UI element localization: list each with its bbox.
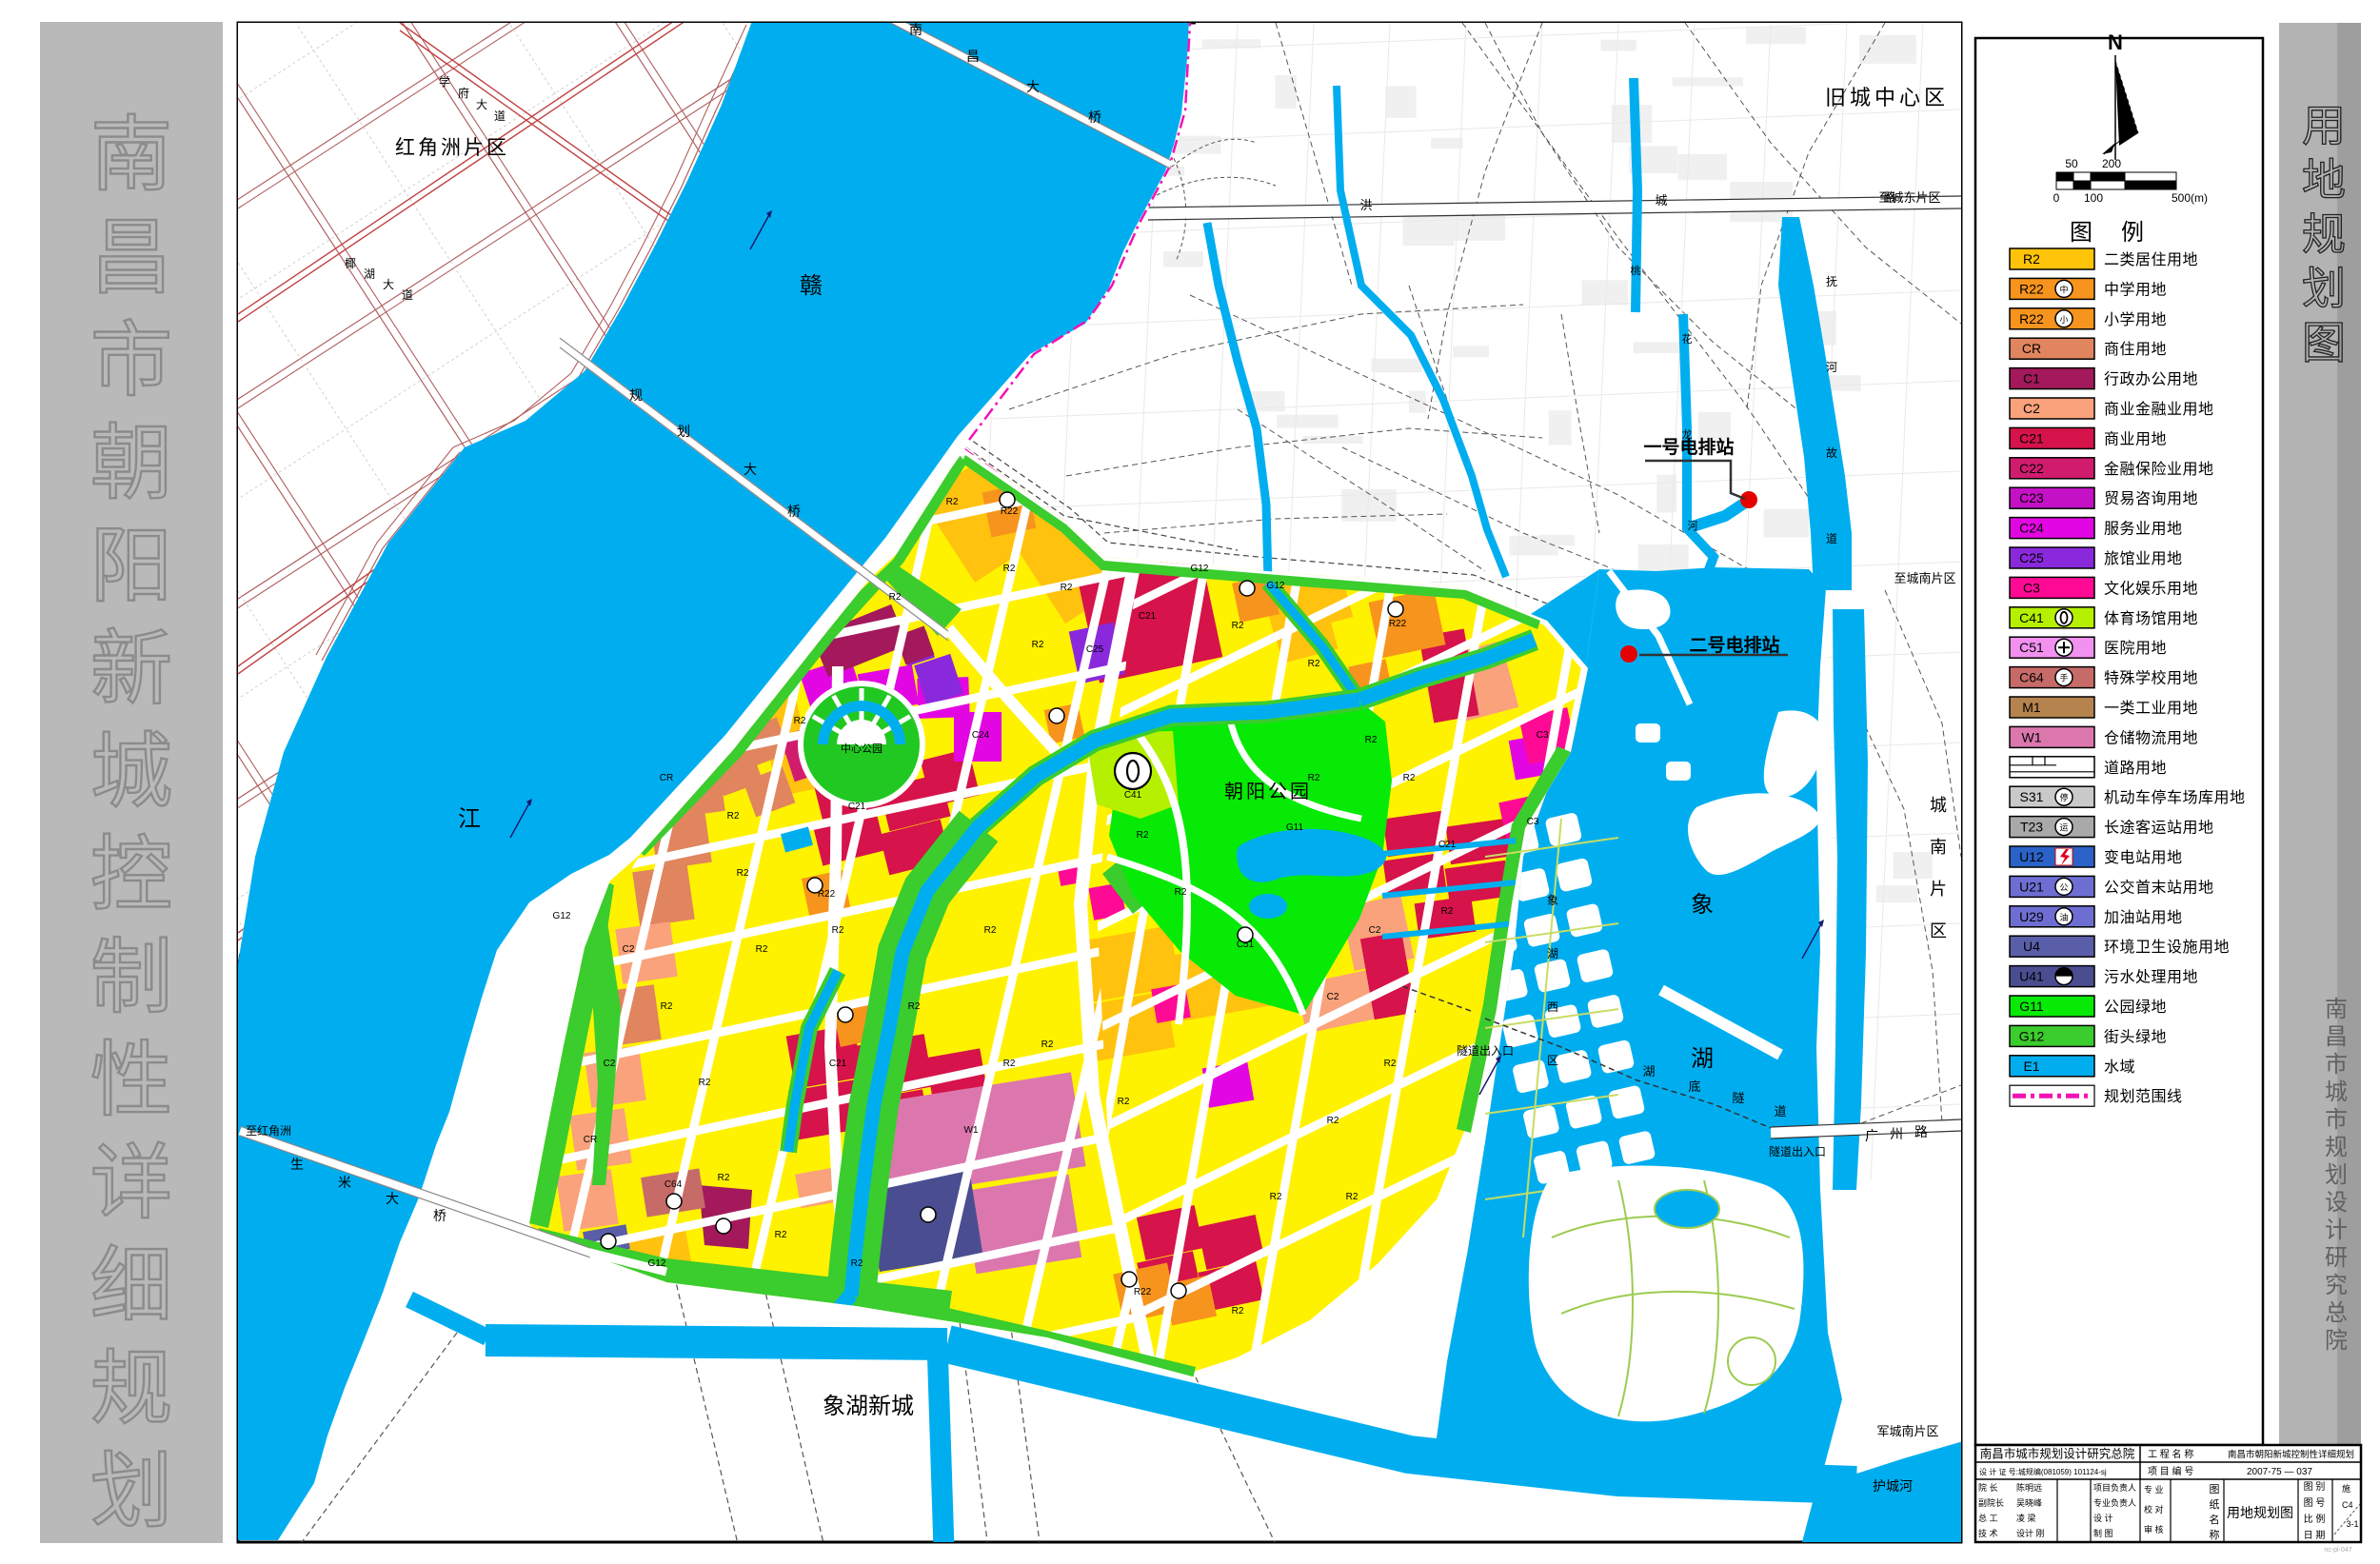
svg-text:隧道出入口: 隧道出入口 <box>1457 1043 1514 1058</box>
svg-text:R2: R2 <box>984 925 997 936</box>
svg-text:C25: C25 <box>2019 550 2044 565</box>
svg-text:运: 运 <box>2059 823 2068 833</box>
svg-text:道: 道 <box>1826 532 1837 545</box>
svg-text:U41: U41 <box>2019 969 2044 984</box>
svg-text:2007-75 — 037: 2007-75 — 037 <box>2247 1467 2312 1477</box>
svg-text:C64: C64 <box>2019 670 2044 685</box>
svg-text:污水处理用地: 污水处理用地 <box>2104 969 2198 986</box>
svg-text:R2: R2 <box>775 1230 787 1240</box>
svg-text:划: 划 <box>677 424 690 439</box>
svg-text:C21: C21 <box>2019 430 2044 445</box>
svg-text:城: 城 <box>1930 796 1947 815</box>
svg-text:图: 图 <box>2210 1483 2220 1495</box>
svg-text:昌: 昌 <box>2325 1024 2348 1050</box>
svg-text:加油站用地: 加油站用地 <box>2104 909 2183 926</box>
svg-text:州: 州 <box>1890 1126 1903 1141</box>
svg-text:大: 大 <box>744 462 757 477</box>
svg-text:龙: 龙 <box>1682 428 1693 441</box>
svg-text:市: 市 <box>2325 1107 2348 1133</box>
svg-text:C41: C41 <box>1124 790 1142 801</box>
svg-text:R2: R2 <box>889 592 902 603</box>
svg-text:市: 市 <box>90 315 172 406</box>
svg-text:R2: R2 <box>908 1001 921 1012</box>
svg-text:湖: 湖 <box>1547 946 1558 960</box>
svg-text:总 工: 总 工 <box>1978 1513 1998 1523</box>
svg-text:用: 用 <box>2302 101 2346 150</box>
svg-text:生: 生 <box>290 1157 304 1172</box>
svg-text:桥: 桥 <box>787 504 801 519</box>
svg-text:G12: G12 <box>2019 1028 2045 1043</box>
svg-text:S31: S31 <box>2020 789 2044 804</box>
svg-text:控: 控 <box>90 829 172 921</box>
svg-text:W1: W1 <box>2022 729 2042 744</box>
svg-text:R2: R2 <box>832 925 844 936</box>
svg-text:性: 性 <box>90 1035 172 1126</box>
svg-text:项目负责人: 项目负责人 <box>2093 1482 2136 1493</box>
svg-text:R2: R2 <box>1175 887 1187 898</box>
svg-text:小: 小 <box>2059 315 2068 325</box>
svg-text:C21: C21 <box>1139 611 1157 622</box>
svg-text:仓储物流用地: 仓储物流用地 <box>2104 729 2198 746</box>
svg-text:专业负责人: 专业负责人 <box>2093 1497 2136 1508</box>
svg-text:地: 地 <box>2302 155 2346 205</box>
svg-text:吴晓峰: 吴晓峰 <box>2016 1497 2042 1508</box>
svg-text:用地规划图: 用地规划图 <box>2227 1505 2293 1520</box>
svg-text:旧城中心区: 旧城中心区 <box>1825 86 1949 109</box>
svg-text:计: 计 <box>2325 1218 2348 1243</box>
svg-text:象: 象 <box>1691 892 1714 918</box>
svg-text:G12: G12 <box>1191 564 1209 574</box>
svg-text:图: 图 <box>2070 220 2092 246</box>
svg-text:象湖新城: 象湖新城 <box>823 1394 914 1419</box>
svg-text:城: 城 <box>1655 193 1667 208</box>
svg-text:赣: 赣 <box>800 273 823 299</box>
svg-text:划: 划 <box>2302 264 2346 313</box>
svg-text:米: 米 <box>338 1175 351 1190</box>
svg-text:学: 学 <box>439 74 450 89</box>
svg-text:军城南片区: 军城南片区 <box>1876 1424 1938 1438</box>
svg-text:图 号: 图 号 <box>2304 1497 2326 1509</box>
svg-text:府: 府 <box>458 86 469 100</box>
svg-text:规: 规 <box>2302 209 2346 259</box>
svg-text:红角洲片区: 红角洲片区 <box>395 137 509 159</box>
svg-text:总: 总 <box>2325 1300 2348 1326</box>
svg-text:C3: C3 <box>1527 817 1539 827</box>
svg-text:规: 规 <box>2325 1135 2348 1160</box>
svg-text:南: 南 <box>1930 838 1947 857</box>
svg-text:C1: C1 <box>2023 371 2040 386</box>
svg-text:R22: R22 <box>1134 1287 1152 1297</box>
svg-text:C2: C2 <box>1369 925 1381 936</box>
svg-text:区: 区 <box>1547 1054 1558 1067</box>
svg-text:河: 河 <box>1826 361 1837 374</box>
svg-text:体育场馆用地: 体育场馆用地 <box>2104 610 2198 627</box>
svg-text:C2: C2 <box>623 944 635 955</box>
svg-text:C24: C24 <box>2019 521 2044 536</box>
svg-text:R2: R2 <box>737 868 749 879</box>
svg-text:纸: 纸 <box>2210 1498 2220 1511</box>
svg-text:大: 大 <box>476 98 487 111</box>
svg-text:昌: 昌 <box>966 49 980 64</box>
svg-text:R2: R2 <box>756 944 768 955</box>
svg-text:U21: U21 <box>2019 879 2044 894</box>
svg-text:日 期: 日 期 <box>2304 1530 2326 1541</box>
svg-text:故: 故 <box>1826 445 1837 460</box>
svg-text:R2: R2 <box>946 497 959 507</box>
svg-text:W1: W1 <box>964 1125 979 1136</box>
svg-text:C21: C21 <box>829 1059 847 1069</box>
svg-text:道: 道 <box>1774 1104 1786 1119</box>
svg-text:变电站用地: 变电站用地 <box>2104 849 2183 866</box>
svg-text:R2: R2 <box>1441 906 1454 917</box>
svg-text:市: 市 <box>2325 1052 2348 1078</box>
svg-text:C22: C22 <box>2019 461 2044 476</box>
svg-text:R22: R22 <box>1001 506 1019 517</box>
svg-text:公园绿地: 公园绿地 <box>2104 999 2167 1016</box>
svg-text:规划范围线: 规划范围线 <box>2104 1088 2183 1105</box>
svg-text:贸易咨询用地: 贸易咨询用地 <box>2104 490 2198 507</box>
svg-text:例: 例 <box>2121 220 2144 246</box>
svg-text:院: 院 <box>2325 1328 2348 1354</box>
svg-text:城: 城 <box>90 726 172 818</box>
svg-text:商住用地: 商住用地 <box>2104 341 2167 358</box>
svg-text:南昌市朝阳新城控制性详细规划: 南昌市朝阳新城控制性详细规划 <box>2228 1449 2354 1460</box>
svg-text:油: 油 <box>2059 912 2068 922</box>
svg-text:花: 花 <box>1682 333 1693 346</box>
svg-text:一类工业用地: 一类工业用地 <box>2104 700 2198 717</box>
svg-text:C24: C24 <box>972 730 990 741</box>
svg-text:0: 0 <box>2053 191 2060 205</box>
svg-text:R2: R2 <box>718 1173 730 1183</box>
svg-text:G11: G11 <box>2019 999 2044 1014</box>
svg-text:规: 规 <box>629 387 643 403</box>
svg-text:昌: 昌 <box>90 212 172 304</box>
svg-text:C2: C2 <box>1327 992 1339 1002</box>
svg-text:R2: R2 <box>1270 1192 1282 1202</box>
svg-text:桥: 桥 <box>433 1208 446 1223</box>
svg-text:称: 称 <box>2210 1528 2220 1541</box>
svg-text:M1: M1 <box>2022 700 2041 715</box>
svg-text:R2: R2 <box>661 1001 673 1012</box>
svg-text:审 核: 审 核 <box>2144 1524 2164 1534</box>
svg-text:湖: 湖 <box>364 267 375 281</box>
svg-text:公: 公 <box>2059 882 2068 892</box>
svg-text:湖: 湖 <box>1642 1064 1655 1079</box>
svg-text:C2: C2 <box>2023 401 2040 416</box>
svg-text:制 图: 制 图 <box>2093 1528 2113 1538</box>
svg-text:500(m): 500(m) <box>2172 191 2208 205</box>
svg-text:护城河: 护城河 <box>1873 1478 1913 1494</box>
svg-text:至红角洲: 至红角洲 <box>246 1123 291 1138</box>
svg-text:南: 南 <box>90 109 172 201</box>
svg-text:隧: 隧 <box>1732 1091 1744 1105</box>
svg-text:底: 底 <box>1688 1079 1700 1094</box>
svg-text:洪: 洪 <box>1359 198 1372 212</box>
svg-text:路: 路 <box>1883 190 1895 205</box>
svg-text:C21: C21 <box>848 802 866 812</box>
svg-text:R2: R2 <box>727 811 740 822</box>
svg-text:大: 大 <box>383 278 394 291</box>
svg-text:服务业用地: 服务业用地 <box>2104 521 2183 538</box>
svg-text:区: 区 <box>1930 921 1947 940</box>
svg-text:R2: R2 <box>1308 659 1320 669</box>
svg-text:图: 图 <box>2302 318 2346 367</box>
svg-text:G12: G12 <box>553 911 571 921</box>
svg-text:项 目 编 号: 项 目 编 号 <box>2148 1465 2193 1477</box>
svg-text:河: 河 <box>1688 520 1698 532</box>
svg-text:R2: R2 <box>794 716 806 726</box>
svg-text:R2: R2 <box>1232 621 1244 631</box>
svg-text:新: 新 <box>90 624 172 715</box>
svg-text:R2: R2 <box>1327 1116 1339 1126</box>
svg-text:象: 象 <box>1547 894 1558 907</box>
svg-text:U29: U29 <box>2019 909 2044 924</box>
svg-text:技 术: 技 术 <box>1978 1528 1998 1538</box>
svg-text:100: 100 <box>2084 191 2103 205</box>
svg-text:专 业: 专 业 <box>2144 1484 2164 1495</box>
svg-text:R2: R2 <box>1308 773 1320 783</box>
svg-text:小学用地: 小学用地 <box>2104 311 2167 328</box>
svg-text:长途客运站用地: 长途客运站用地 <box>2104 820 2214 837</box>
svg-text:街头绿地: 街头绿地 <box>2104 1028 2167 1045</box>
svg-text:C64: C64 <box>664 1179 683 1190</box>
svg-text:50: 50 <box>2065 157 2078 170</box>
svg-text:比 例: 比 例 <box>2304 1513 2326 1525</box>
svg-text:细: 细 <box>90 1240 172 1332</box>
svg-text:设 计: 设 计 <box>2093 1513 2113 1523</box>
svg-text:R2: R2 <box>1384 1059 1397 1069</box>
svg-text:R2: R2 <box>1137 830 1149 841</box>
svg-text:E1: E1 <box>2023 1059 2039 1074</box>
svg-text:G12: G12 <box>648 1258 666 1269</box>
svg-text:C25: C25 <box>1086 644 1104 655</box>
svg-text:至城南片区: 至城南片区 <box>1894 571 1955 585</box>
svg-text:江: 江 <box>458 806 481 832</box>
svg-text:凌 梁: 凌 梁 <box>2016 1513 2036 1523</box>
svg-text:研: 研 <box>2325 1245 2348 1271</box>
svg-text:金融保险业用地: 金融保险业用地 <box>2104 461 2214 478</box>
svg-text:R2: R2 <box>851 1258 863 1269</box>
svg-text:中心公园: 中心公园 <box>841 742 883 755</box>
svg-text:二类居住用地: 二类居住用地 <box>2104 251 2198 268</box>
svg-text:抚: 抚 <box>1826 275 1837 288</box>
svg-text:大: 大 <box>386 1191 399 1206</box>
svg-text:图 别: 图 别 <box>2304 1481 2326 1493</box>
svg-text:设计 刚: 设计 刚 <box>2016 1528 2045 1538</box>
svg-text:CR: CR <box>2022 341 2041 356</box>
svg-text:R2: R2 <box>1003 1059 1016 1069</box>
svg-text:道: 道 <box>494 109 506 123</box>
svg-text:R2: R2 <box>1032 640 1044 650</box>
svg-text:R2: R2 <box>1041 1039 1054 1050</box>
svg-text:校 对: 校 对 <box>2144 1504 2164 1515</box>
svg-text:C4: C4 <box>2342 1500 2353 1510</box>
svg-text:规: 规 <box>90 1343 172 1435</box>
svg-text:200: 200 <box>2102 157 2121 170</box>
svg-text:R2: R2 <box>2023 251 2040 267</box>
svg-text:朝: 朝 <box>90 418 172 509</box>
svg-text:3-1: 3-1 <box>2346 1519 2358 1529</box>
svg-text:片: 片 <box>1930 880 1947 899</box>
svg-text:工 程 名 称: 工 程 名 称 <box>2148 1448 2193 1460</box>
svg-text:道: 道 <box>402 288 413 302</box>
svg-text:设: 设 <box>2325 1190 2348 1216</box>
svg-text:设 计 证 号:城规编(081059) 101124-sj: 设 计 证 号:城规编(081059) 101124-sj <box>1979 1467 2107 1476</box>
svg-text:特殊学校用地: 特殊学校用地 <box>2104 670 2198 687</box>
svg-text:朝阳公园: 朝阳公园 <box>1224 781 1312 802</box>
svg-text:R22: R22 <box>2019 281 2044 296</box>
svg-text:名: 名 <box>2210 1513 2220 1526</box>
svg-text:椰: 椰 <box>345 256 356 270</box>
svg-text:R2: R2 <box>1346 1192 1359 1202</box>
svg-text:陈明远: 陈明远 <box>2016 1482 2042 1493</box>
svg-text:R2: R2 <box>1003 564 1016 574</box>
svg-text:CR: CR <box>584 1135 597 1145</box>
svg-text:划: 划 <box>2325 1162 2348 1188</box>
svg-text:旅馆业用地: 旅馆业用地 <box>2104 550 2183 567</box>
svg-text:R22: R22 <box>1389 619 1407 629</box>
svg-text:N: N <box>2108 30 2123 54</box>
svg-text:详: 详 <box>90 1138 172 1229</box>
svg-text:C21: C21 <box>1438 840 1457 850</box>
svg-text:机动车停车场库用地: 机动车停车场库用地 <box>2104 789 2246 806</box>
svg-text:医院用地: 医院用地 <box>2104 640 2167 657</box>
svg-text:R2: R2 <box>1365 735 1378 745</box>
svg-text:水域: 水域 <box>2104 1059 2135 1076</box>
svg-text:南昌市城市规划设计研究总院: 南昌市城市规划设计研究总院 <box>1980 1447 2135 1461</box>
svg-text:T23: T23 <box>2020 820 2043 835</box>
svg-text:施: 施 <box>2342 1483 2350 1494</box>
svg-text:R2: R2 <box>1232 1306 1244 1317</box>
svg-text:院 长: 院 长 <box>1978 1482 1998 1493</box>
svg-text:中学用地: 中学用地 <box>2104 281 2167 298</box>
svg-text:R2: R2 <box>1118 1097 1130 1107</box>
svg-text:R2: R2 <box>1403 773 1416 783</box>
svg-text:桃: 桃 <box>1631 264 1641 277</box>
svg-text:副院长: 副院长 <box>1978 1497 2004 1508</box>
svg-text:道路用地: 道路用地 <box>2104 760 2167 777</box>
svg-text:南: 南 <box>2325 997 2348 1022</box>
svg-text:CR: CR <box>660 773 673 783</box>
svg-text:手: 手 <box>2059 673 2068 683</box>
svg-text:C3: C3 <box>1537 730 1549 741</box>
svg-text:划: 划 <box>90 1446 172 1537</box>
svg-text:城: 城 <box>2325 1079 2348 1105</box>
svg-text:C3: C3 <box>2023 580 2040 595</box>
svg-text:制: 制 <box>90 932 172 1023</box>
svg-text:R22: R22 <box>2019 311 2044 327</box>
svg-text:二号电排站: 二号电排站 <box>1689 634 1779 656</box>
svg-text:大: 大 <box>1026 79 1040 94</box>
svg-text:公交首末站用地: 公交首末站用地 <box>2104 879 2214 896</box>
svg-text:桥: 桥 <box>1088 109 1101 125</box>
svg-text:商业金融业用地: 商业金融业用地 <box>2104 401 2214 418</box>
svg-text:南: 南 <box>909 22 922 37</box>
svg-text:U12: U12 <box>2019 849 2044 864</box>
svg-text:停: 停 <box>2059 792 2068 802</box>
svg-text:西: 西 <box>1547 1000 1558 1014</box>
svg-text:湖: 湖 <box>1691 1046 1714 1072</box>
svg-text:阳: 阳 <box>90 521 172 612</box>
svg-text:中: 中 <box>2059 284 2068 294</box>
svg-text:究: 究 <box>2325 1273 2348 1298</box>
svg-text:行政办公用地: 行政办公用地 <box>2104 371 2198 388</box>
svg-text:nc-pl-047: nc-pl-047 <box>2324 1547 2351 1554</box>
svg-text:R2: R2 <box>699 1078 711 1088</box>
svg-text:文化娱乐用地: 文化娱乐用地 <box>2104 580 2198 597</box>
svg-text:C41: C41 <box>2019 610 2044 625</box>
svg-text:路: 路 <box>1914 1124 1928 1139</box>
svg-text:C51: C51 <box>2019 640 2044 655</box>
svg-text:G11: G11 <box>1286 822 1304 833</box>
svg-text:环境卫生设施用地: 环境卫生设施用地 <box>2104 938 2230 956</box>
svg-text:G12: G12 <box>1267 581 1285 591</box>
svg-text:商业用地: 商业用地 <box>2104 430 2167 447</box>
svg-text:广: 广 <box>1865 1128 1878 1143</box>
svg-text:U4: U4 <box>2023 939 2040 954</box>
svg-text:C2: C2 <box>604 1059 616 1069</box>
svg-text:C23: C23 <box>2019 490 2044 505</box>
svg-text:R2: R2 <box>1061 583 1073 593</box>
svg-text:隧道出入口: 隧道出入口 <box>1769 1144 1826 1158</box>
